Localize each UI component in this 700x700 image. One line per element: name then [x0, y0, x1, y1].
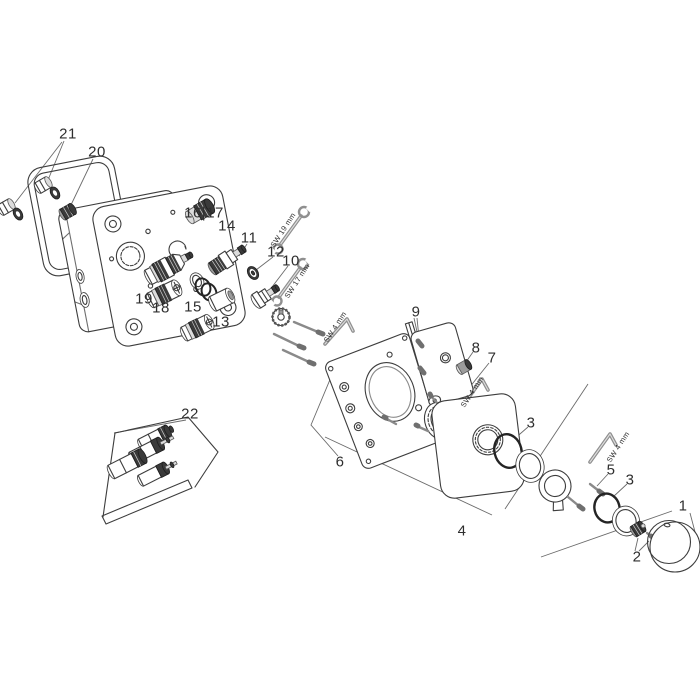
cap-12	[245, 264, 261, 281]
allen-key-sw4-middle	[325, 319, 353, 344]
handle-knob-1	[648, 521, 700, 573]
gear-adapter-10	[273, 309, 290, 326]
exploded-parts-diagram: 212016|171411121019181513987622435321SW …	[0, 0, 700, 700]
diagram-drawing	[0, 0, 700, 700]
wrench-sw19	[271, 207, 311, 254]
screw-5	[590, 484, 603, 494]
extension-set-22	[102, 417, 218, 524]
escutcheon-plate-4	[430, 392, 525, 500]
fixing-screws	[274, 322, 323, 364]
allen-key-sw4-far-right	[590, 434, 616, 462]
handle-screw	[568, 497, 583, 509]
